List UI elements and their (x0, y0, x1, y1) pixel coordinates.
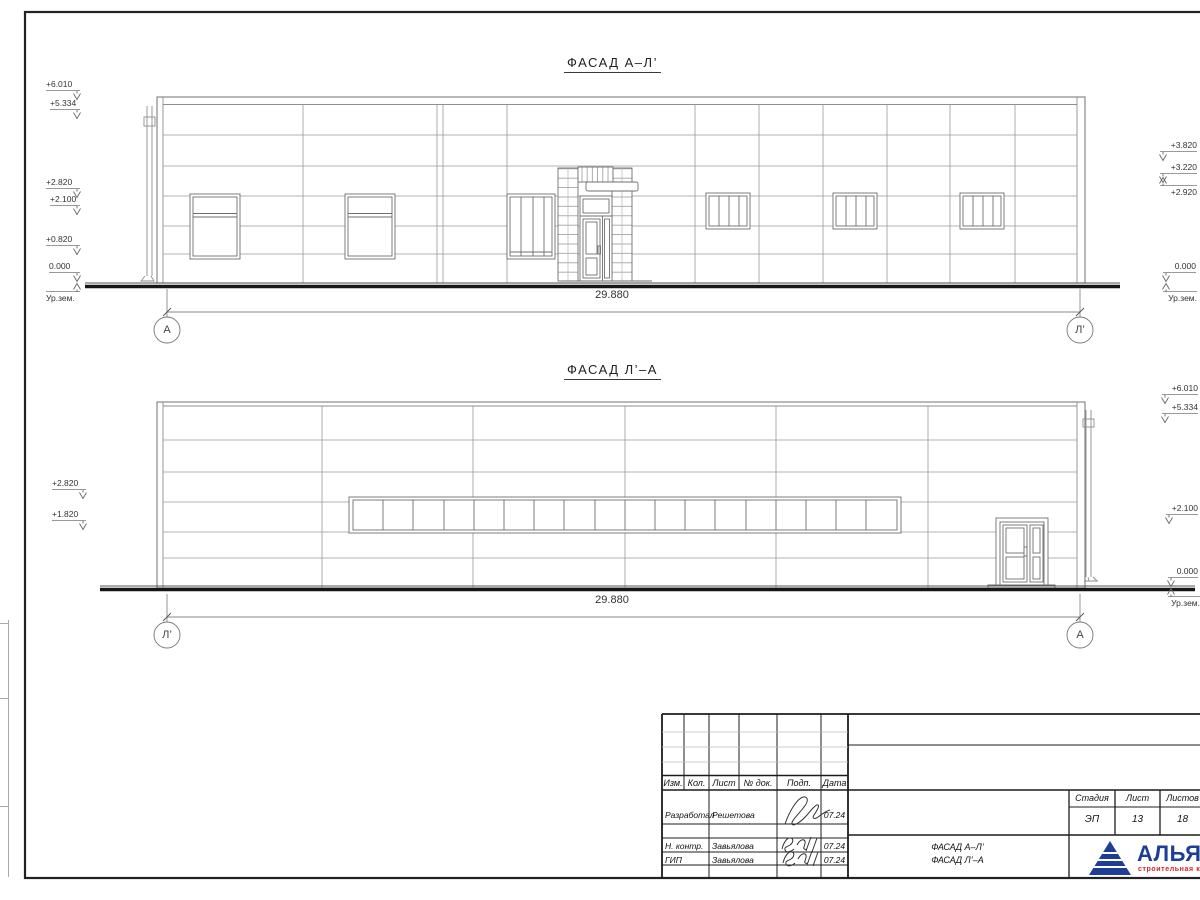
elevation-mark: +1.820 (52, 508, 86, 521)
axis-label: Л’ (1067, 324, 1093, 336)
elevation-mark: +2.100 (1166, 502, 1198, 515)
title-block-col-podp: Подп. (777, 777, 821, 790)
elevation-mark: 0.000 (49, 260, 80, 273)
company-logo-mark (1086, 841, 1132, 875)
ground-level-mark: Ур.зем. (46, 291, 80, 304)
company-logo-subtitle: строительная компания (1138, 866, 1200, 873)
elevation-mark: +6.010 (1162, 382, 1198, 395)
drawing-sheet: ФАСАД А–Л’ ФАСАД Л’–А 29.880 29.880 А Л’… (0, 0, 1200, 900)
facade-bottom-title: ФАСАД Л’–А (450, 362, 775, 380)
elevation-mark: +2.820 (46, 176, 80, 189)
staff-name: Завьялова (712, 854, 774, 866)
elevation-mark: +5.334 (50, 97, 80, 110)
facade-top-drawing (85, 97, 1120, 343)
staff-date: 07.24 (821, 854, 848, 866)
title-block-col-data: Дата (821, 777, 848, 790)
elevation-mark: +3.820 (1160, 139, 1197, 152)
signature-ncontrol (782, 837, 817, 852)
facade-top-title: ФАСАД А–Л’ (450, 55, 775, 73)
elevation-mark: +6.010 (46, 78, 80, 91)
title-block-col-kol: Кол. (684, 777, 709, 790)
sheets-total: 18 (1160, 813, 1200, 827)
title-block-col-doc: № док. (739, 777, 777, 790)
ground-level-mark: Ур.зем. (1168, 596, 1200, 609)
title-block-col-list: Лист (709, 777, 739, 790)
sheet-number: 13 (1115, 813, 1160, 827)
elevation-mark: 0.000 (1163, 260, 1196, 273)
staff-role: Н. контр. (665, 840, 709, 852)
staff-date: 07.24 (821, 809, 848, 821)
elevation-mark: +5.334 (1162, 401, 1198, 414)
staff-role: Разработал (665, 809, 709, 821)
dimension-label-top: 29.880 (562, 289, 662, 301)
doc-name-line2: ФАСАД Л’–А (850, 854, 1065, 866)
dimension-label-bottom: 29.880 (562, 594, 662, 606)
staff-date: 07.24 (821, 840, 848, 852)
staff-name: Решетова (712, 809, 774, 821)
drawing-linework (0, 0, 1200, 900)
facade-bottom-drawing (100, 402, 1195, 648)
company-logo-name: АЛЬЯНС (1137, 842, 1200, 866)
elevation-mark: +2.100 (50, 193, 80, 206)
axis-label: А (1067, 629, 1093, 641)
sheet-header: Лист (1115, 792, 1160, 805)
staff-role: ГИП (665, 854, 709, 866)
sheet-frame (0, 12, 1200, 878)
title-block-col-izm: Изм. (662, 777, 684, 790)
stage-value: ЭП (1069, 813, 1115, 827)
sheets-header: Листов (1160, 792, 1200, 805)
elevation-mark: 0.000 (1168, 565, 1198, 578)
signature-gip (783, 851, 818, 866)
doc-name-line1: ФАСАД А–Л’ (850, 841, 1065, 853)
elevation-mark: +3.220 (1160, 161, 1197, 174)
elevation-mark: +2.820 (52, 477, 86, 490)
elevation-mark: +2.920 (1160, 185, 1197, 198)
stage-header: Стадия (1069, 792, 1115, 805)
staff-name: Завьялова (712, 840, 774, 852)
elevation-mark: +0.820 (46, 233, 80, 246)
axis-label: Л’ (154, 629, 180, 641)
ground-level-mark: Ур.зем. (1163, 291, 1197, 304)
axis-label: А (154, 324, 180, 336)
